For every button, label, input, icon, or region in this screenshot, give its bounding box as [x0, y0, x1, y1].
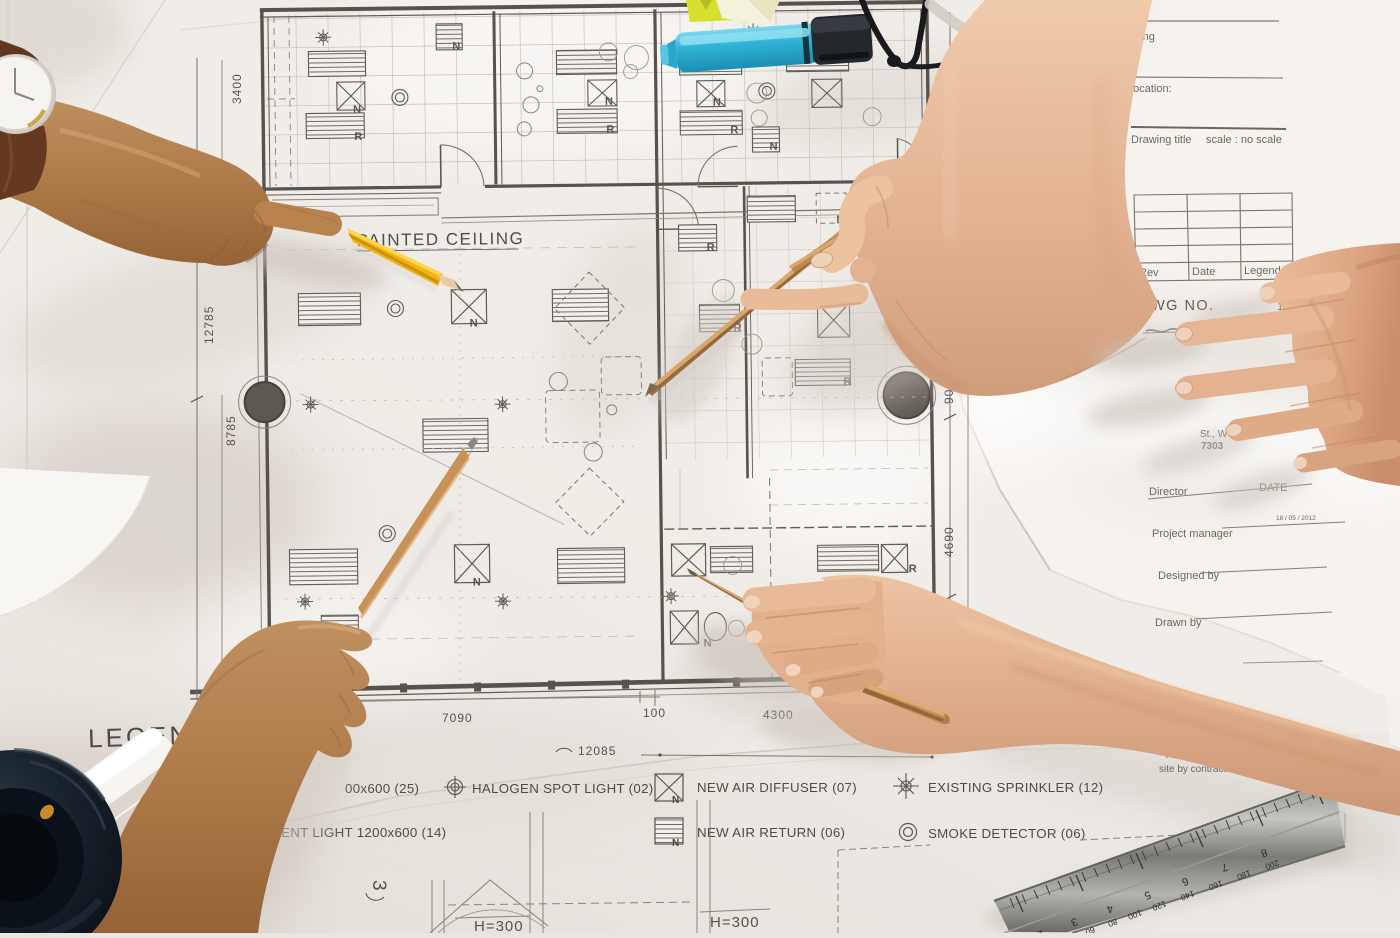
svg-text:Drawing title: Drawing title — [1131, 134, 1192, 146]
svg-text:N: N — [452, 41, 460, 53]
svg-text:N: N — [605, 96, 613, 108]
svg-text:N: N — [769, 141, 777, 153]
svg-text:12085: 12085 — [578, 744, 616, 758]
svg-text:R: R — [909, 563, 917, 575]
svg-text:R: R — [606, 124, 614, 136]
svg-text:H=300: H=300 — [474, 918, 524, 933]
svg-text:Legend: Legend — [1244, 265, 1281, 277]
svg-text:EXISTING SPRINKLER (12): EXISTING SPRINKLER (12) — [928, 780, 1103, 795]
svg-text:NEW AIR RETURN (06): NEW AIR RETURN (06) — [697, 825, 845, 840]
svg-text:Project manager: Project manager — [1152, 528, 1233, 540]
svg-text:SMOKE DETECTOR (06): SMOKE DETECTOR (06) — [928, 826, 1086, 841]
svg-text:18 / 05 / 2012: 18 / 05 / 2012 — [1276, 515, 1316, 522]
svg-text:7090: 7090 — [442, 711, 473, 725]
svg-text:3: 3 — [368, 880, 389, 891]
svg-text:R: R — [730, 124, 738, 136]
svg-text:scale : no scale: scale : no scale — [1206, 134, 1282, 146]
svg-text:R: R — [707, 242, 715, 254]
svg-text:N: N — [672, 838, 679, 849]
svg-text:N: N — [713, 97, 721, 109]
svg-text:00x600 (25): 00x600 (25) — [345, 781, 419, 796]
svg-text:8785: 8785 — [224, 415, 238, 446]
svg-text:12785: 12785 — [202, 306, 216, 344]
svg-text:4690: 4690 — [942, 526, 956, 557]
svg-text:Designed by: Designed by — [1158, 570, 1220, 582]
svg-text:100: 100 — [643, 706, 666, 720]
svg-text:R: R — [354, 131, 362, 143]
svg-text:N: N — [473, 576, 481, 588]
svg-text:3400: 3400 — [230, 73, 244, 104]
svg-text:H=300: H=300 — [710, 914, 760, 931]
svg-text:HALOGEN SPOT LIGHT (02): HALOGEN SPOT LIGHT (02) — [472, 781, 654, 796]
svg-text:Date: Date — [1192, 266, 1215, 278]
svg-text:N: N — [672, 795, 679, 806]
svg-text:N: N — [470, 317, 478, 329]
svg-text:NEW AIR DIFFUSER (07): NEW AIR DIFFUSER (07) — [697, 780, 857, 795]
